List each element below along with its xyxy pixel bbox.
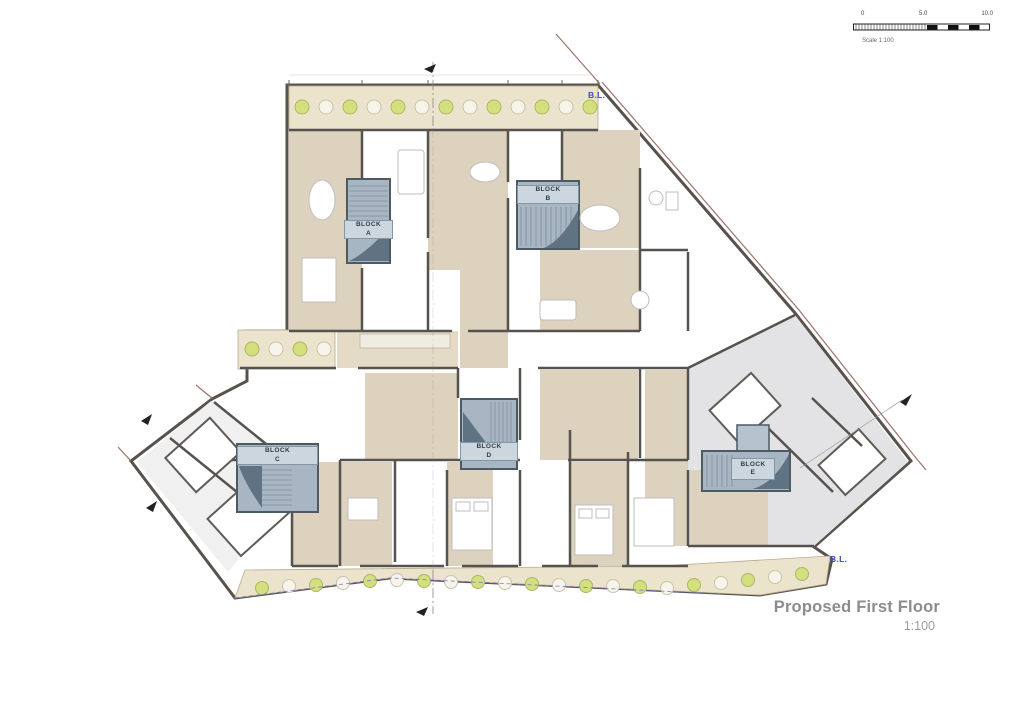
scale-bar-labels: 0 5.0 10.0: [853, 11, 993, 19]
block-b-label: BLOCK B: [517, 185, 579, 204]
boundary-label-top: B.L.: [588, 90, 605, 100]
block-d-name: BLOCK: [461, 443, 517, 451]
section-arrow-top-icon: [424, 64, 436, 73]
section-arrow-bottom-icon: [416, 607, 428, 616]
block-d-label: BLOCK D: [460, 442, 518, 461]
scale-tick-mid: 5.0: [919, 11, 927, 17]
scale-bar: 0 5.0 10.0 Scale 1:100: [853, 11, 993, 44]
block-a-label: BLOCK A: [344, 220, 393, 239]
floor-plan-page: B.L. B.L. BLOCK A BLOCK B BLOCK C BLOCK …: [0, 0, 1024, 704]
block-d-letter: D: [461, 452, 517, 460]
block-c-name: BLOCK: [238, 447, 317, 455]
block-e-name: BLOCK: [732, 461, 774, 469]
scale-bar-graphic: [853, 23, 990, 32]
section-arrow-left-upper-icon: [141, 414, 152, 425]
scale-tick-zero: 0: [861, 11, 864, 17]
boundary-label-bottom: B.L.: [830, 554, 847, 564]
scale-tick-end: 10.0: [981, 11, 993, 17]
block-c-letter: C: [238, 456, 317, 464]
scale-bar-caption: Scale 1:100: [862, 38, 993, 44]
block-b-name: BLOCK: [518, 186, 578, 194]
section-arrow-left-lower-icon: [146, 501, 157, 512]
block-a-letter: A: [345, 230, 392, 238]
block-b-letter: B: [518, 195, 578, 203]
block-e-label: BLOCK E: [731, 458, 775, 480]
page-title: Proposed First Floor: [774, 598, 940, 617]
block-a-name: BLOCK: [345, 221, 392, 229]
page-scale: 1:100: [774, 619, 940, 633]
block-e-letter: E: [732, 469, 774, 477]
title-block: Proposed First Floor 1:100: [774, 598, 940, 633]
block-c-label: BLOCK C: [237, 446, 318, 465]
